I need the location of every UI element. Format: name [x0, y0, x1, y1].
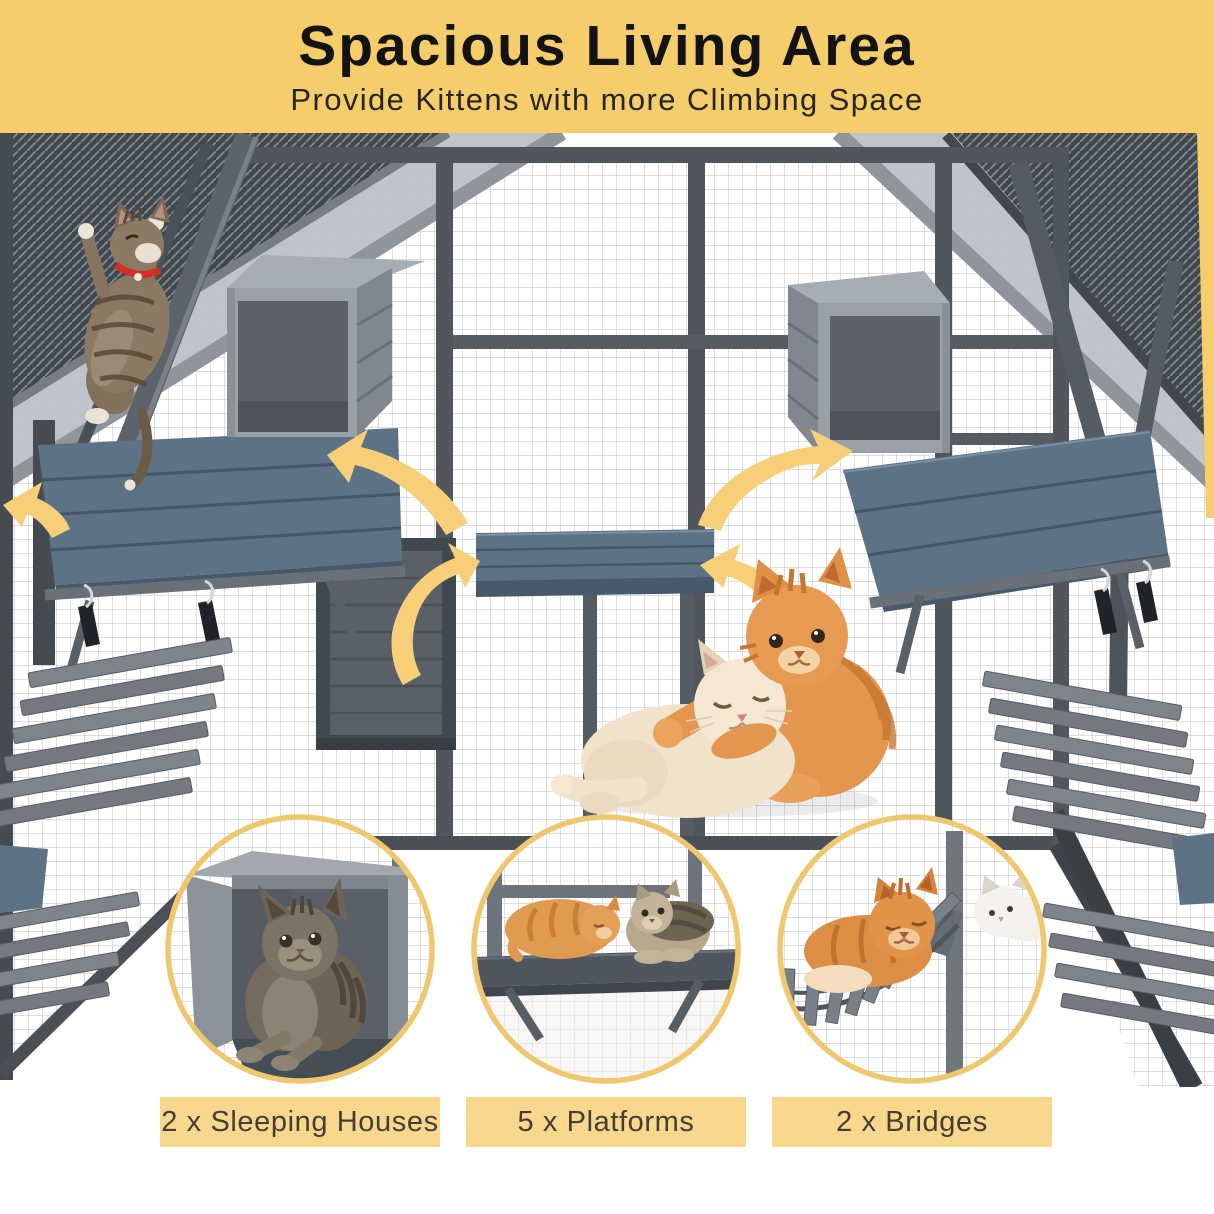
feature-label-platforms: 5 x Platforms [466, 1097, 746, 1147]
feature-label-bridges: 2 x Bridges [772, 1097, 1052, 1147]
sleeping-box-right [788, 271, 950, 453]
page-subtitle: Provide Kittens with more Climbing Space [290, 84, 923, 115]
page-title: Spacious Living Area [298, 18, 916, 75]
catio-photo [0, 133, 1214, 1087]
banner: Spacious Living Area Provide Kittens wit… [0, 0, 1214, 133]
platform-center [476, 529, 714, 597]
product-feature-image: Spacious Living Area Provide Kittens wit… [0, 0, 1214, 1214]
feature-label-sleeping-houses: 2 x Sleeping Houses [160, 1097, 440, 1147]
